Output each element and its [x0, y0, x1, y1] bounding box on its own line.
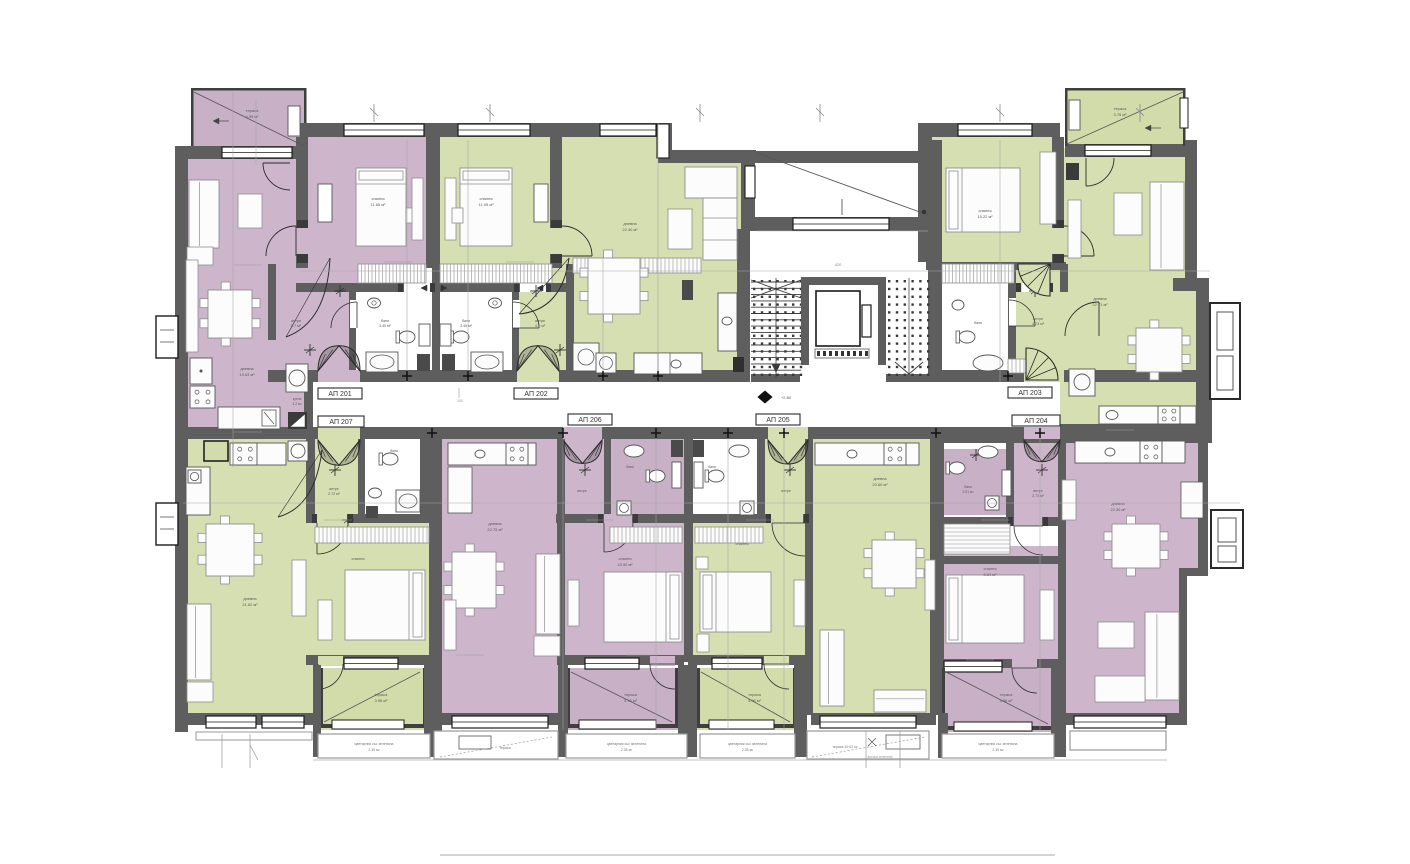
svg-text:тераса 10.02 м²: тераса 10.02 м²: [832, 745, 858, 749]
svg-text:3.76 м²: 3.76 м²: [1114, 112, 1128, 117]
svg-text:кухня: кухня: [293, 397, 302, 401]
svg-text:цветарник сьс зеленина: цветарник сьс зеленина: [355, 742, 394, 746]
svg-text:цветарник сьс зеленина: цветарник сьс зеленина: [979, 742, 1018, 746]
svg-text:дневна: дневна: [240, 366, 254, 371]
svg-text:11.65 м²: 11.65 м²: [371, 202, 387, 207]
svg-text:22.75 м²: 22.75 м²: [487, 527, 503, 532]
svg-text:дневна: дневна: [1111, 501, 1125, 506]
svg-text:баня: баня: [381, 319, 389, 323]
svg-text:2.35 м²: 2.35 м²: [368, 748, 380, 752]
svg-text:22.30 м²: 22.30 м²: [1110, 507, 1126, 512]
svg-text:спалня: спалня: [983, 566, 996, 571]
svg-text:антре: антре: [1033, 489, 1043, 493]
svg-text:баня: баня: [462, 319, 470, 323]
svg-text:АП 202: АП 202: [524, 391, 547, 398]
svg-text:спалня: спалня: [618, 556, 631, 561]
svg-text:дневна: дневна: [623, 221, 637, 226]
svg-text:тераса: тераса: [748, 692, 761, 697]
svg-text:спалня: спалня: [978, 208, 991, 213]
svg-text:тераса: тераса: [1114, 106, 1127, 111]
svg-text:+2.80: +2.80: [781, 395, 792, 400]
svg-text:висока зеленина: висока зеленина: [868, 755, 893, 759]
svg-text:3.96 м²: 3.96 м²: [375, 698, 389, 703]
svg-text:3.45 м²: 3.45 м²: [460, 324, 472, 328]
svg-text:4.99 м²: 4.99 м²: [246, 114, 260, 119]
svg-text:3.96 м²: 3.96 м²: [624, 698, 638, 703]
svg-text:3.96 м²: 3.96 м²: [1000, 698, 1014, 703]
svg-text:22.40 м²: 22.40 м²: [622, 227, 638, 232]
svg-text:антре: антре: [577, 489, 587, 493]
svg-text:спалня: спалня: [351, 556, 364, 561]
svg-text:дневна: дневна: [488, 521, 502, 526]
svg-text:420: 420: [835, 262, 842, 267]
svg-text:спалня: спалня: [735, 541, 748, 546]
svg-text:2.73 м²: 2.73 м²: [1032, 494, 1044, 498]
svg-text:21.62 м²: 21.62 м²: [242, 602, 258, 607]
svg-text:АП 203: АП 203: [1018, 390, 1041, 397]
svg-text:5.7 м²: 5.7 м²: [291, 324, 302, 328]
svg-text:баня: баня: [974, 321, 982, 325]
svg-text:2.35 м²: 2.35 м²: [621, 748, 633, 752]
svg-text:баня: баня: [626, 465, 634, 469]
svg-text:антре: антре: [535, 319, 545, 323]
svg-text:19.63 м²: 19.63 м²: [239, 372, 255, 377]
svg-text:тераса: тераса: [1000, 692, 1013, 697]
svg-text:АП 207: АП 207: [329, 419, 352, 426]
svg-text:11.99 м²: 11.99 м²: [479, 202, 495, 207]
svg-text:дневна: дневна: [243, 596, 257, 601]
svg-text:15.22 м²: 15.22 м²: [977, 214, 993, 219]
svg-text:баня: баня: [390, 449, 398, 453]
svg-text:3.96 м²: 3.96 м²: [748, 698, 762, 703]
svg-text:тераса: тераса: [246, 108, 259, 113]
svg-text:150: 150: [457, 399, 463, 403]
svg-text:4.2 м²: 4.2 м²: [292, 402, 302, 406]
svg-text:20.60 м²: 20.60 м²: [872, 482, 888, 487]
svg-text:цветарник сьс зеленина: цветарник сьс зеленина: [728, 742, 767, 746]
svg-text:2.91 м²: 2.91 м²: [962, 490, 974, 494]
svg-text:тераса: тераса: [499, 746, 510, 750]
svg-text:2.35 м²: 2.35 м²: [742, 748, 754, 752]
svg-text:АП 205: АП 205: [766, 417, 789, 424]
svg-text:3.40 м²: 3.40 м²: [379, 324, 391, 328]
svg-text:тераса: тераса: [624, 692, 637, 697]
svg-text:дневна: дневна: [873, 476, 887, 481]
svg-text:22.71 м²: 22.71 м²: [1092, 302, 1108, 307]
svg-text:9.24 м²: 9.24 м²: [984, 572, 998, 577]
svg-text:спалня: спалня: [371, 196, 384, 201]
svg-text:2.72 м²: 2.72 м²: [328, 492, 340, 496]
svg-text:дневна: дневна: [1093, 296, 1107, 301]
svg-text:антре: антре: [781, 489, 791, 493]
svg-text:антре: антре: [291, 319, 301, 323]
svg-text:4.7 м²: 4.7 м²: [535, 324, 546, 328]
svg-text:АП 201: АП 201: [328, 391, 351, 398]
svg-text:тераса: тераса: [375, 692, 388, 697]
svg-text:АП 204: АП 204: [1024, 418, 1047, 425]
svg-text:антре: антре: [1033, 317, 1043, 321]
svg-text:АП 206: АП 206: [578, 417, 601, 424]
svg-text:антре: антре: [329, 487, 339, 491]
svg-text:спалня: спалня: [479, 196, 492, 201]
svg-text:баня: баня: [964, 485, 972, 489]
svg-text:4.73 м²: 4.73 м²: [1032, 322, 1045, 326]
svg-text:10.92 м²: 10.92 м²: [617, 562, 633, 567]
svg-text:2.35 м²: 2.35 м²: [992, 748, 1004, 752]
svg-text:цветарник сьс зеленина: цветарник сьс зеленина: [607, 742, 646, 746]
svg-text:баня: баня: [708, 465, 716, 469]
